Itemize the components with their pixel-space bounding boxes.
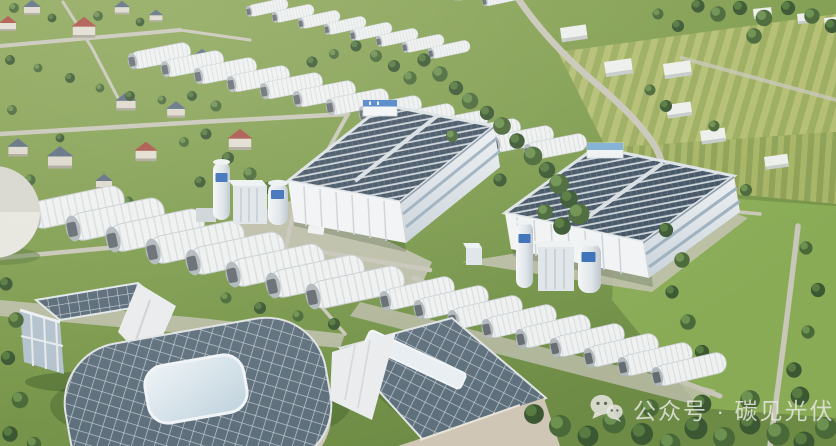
watermark: 公众号 · 碳见光伏 [590, 392, 834, 426]
industrial-park-illustration [0, 0, 836, 446]
sunlight-haze [0, 0, 836, 446]
watermark-text: 公众号 · 碳见光伏 [633, 392, 834, 426]
wechat-icon [590, 394, 624, 424]
rendered-aerial-image: 公众号 · 碳见光伏 [0, 0, 836, 446]
